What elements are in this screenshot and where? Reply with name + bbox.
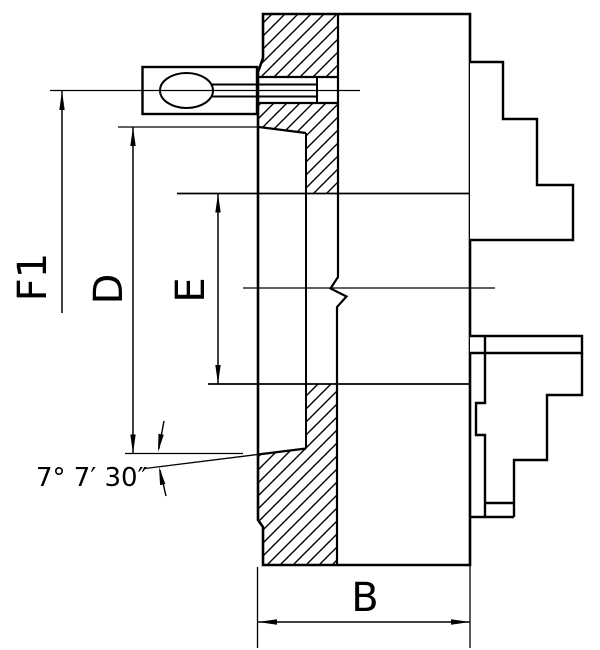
dimension-label-b: B [351,575,378,621]
bottom-jaw-bottom-band [470,503,514,517]
d-arrow-down [130,435,135,454]
bottom-jaw-left-profile [476,353,485,503]
top-jaw [470,62,573,240]
jaws [470,62,582,517]
d-arrow-up [130,127,135,146]
e-arrow-down [215,365,220,384]
dimension-e: E [168,194,221,385]
dimension-f1: F1 [10,91,65,313]
b-arrow-left [258,619,277,624]
e-arrow-up [215,194,220,213]
hatch-top-flange [258,14,338,77]
technical-drawing-chuck-cross-section: F1 D E B 7° 7′ 30″ [0,0,600,650]
f1-arrow-up [59,91,64,110]
angle-arrow-upper-head [155,434,163,453]
dimension-label-f1: F1 [10,253,56,301]
b-arrow-right [451,619,470,624]
dimension-label-d: D [86,274,132,305]
taper-angle-label: 7° 7′ 30″ [36,463,148,493]
bottom-jaw-top-band [470,336,582,353]
dimension-label-e: E [168,277,214,302]
bottom-jaw [470,336,582,517]
drawing-svg: F1 D E B 7° 7′ 30″ [0,0,600,650]
dimension-b: B [258,565,471,648]
bottom-jaw-right-profile [514,353,582,517]
angle-arrow-lower-head [156,466,165,485]
